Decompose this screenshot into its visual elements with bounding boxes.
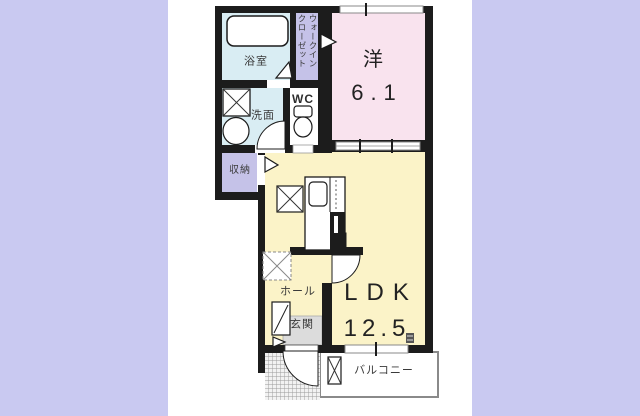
wall-hall-ldk: [322, 283, 332, 347]
appliance-space-icon: [263, 252, 291, 280]
wc-door-opening: [293, 145, 313, 153]
wall-closet-western: [318, 6, 332, 152]
western-room-label: 洋: [363, 50, 383, 70]
wall-right: [425, 6, 433, 353]
entrance-label: 玄関: [290, 320, 314, 331]
refrigerator-space-icon: [277, 186, 303, 212]
bathtub-icon: [227, 16, 288, 46]
balcony-partition-icon: [328, 357, 341, 384]
hall-label: ホール: [280, 287, 316, 298]
ldk-label: LDK: [344, 281, 418, 305]
wc-label: WC: [292, 93, 314, 105]
bath-label: 浴室: [244, 57, 268, 68]
washing-machine-icon: [223, 89, 250, 116]
western-room: [332, 13, 425, 140]
walk-in-closet-label: ウォークイン クローゼット: [295, 14, 319, 82]
shoe-cabinet-icon: [272, 302, 290, 335]
floorplan-image: 浴室 ウォークイン クローゼット 洗面 WC 収納 洋 6.1 LDK 12.5…: [0, 0, 640, 416]
storage-door-opening: [257, 155, 265, 185]
wall-storage-bottom: [215, 192, 265, 200]
ldk-size: 12.5: [344, 317, 411, 341]
toilet-icon: [294, 106, 312, 137]
wall-bath-bottom: [215, 80, 267, 88]
kitchen-sink-icon: [309, 182, 327, 206]
washroom-label: 洗面: [251, 111, 275, 122]
storage-label: 収納: [229, 166, 251, 176]
wall-left-upper: [215, 6, 222, 200]
western-room-size: 6.1: [351, 82, 403, 104]
basin-icon: [223, 118, 249, 145]
bath-door-opening: [267, 80, 290, 88]
kitchen-counter-icon: [305, 177, 345, 250]
western-room-window: [340, 6, 423, 13]
walk-in-closet-label-line2: クローゼット: [296, 14, 307, 82]
walk-in-closet-label-line1: ウォークイン: [307, 14, 318, 82]
floorplan-drawing: [0, 0, 640, 416]
balcony-label: バルコニー: [354, 366, 414, 377]
